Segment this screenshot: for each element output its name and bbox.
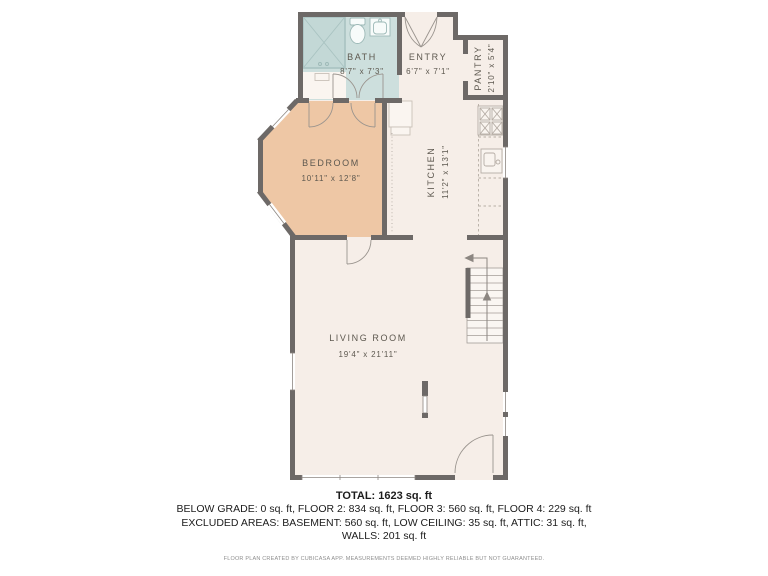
svg-text:KITCHEN: KITCHEN [426,147,436,198]
svg-text:BEDROOM: BEDROOM [302,158,360,168]
floor-closet [303,72,346,99]
excluded-areas-line: EXCLUDED AREAS: BASEMENT: 560 sq. ft, LO… [0,517,768,531]
floor-plan: BATH 8'7" x 7'3" ENTRY 6'7" x 7'1" PANTR… [0,0,768,490]
svg-text:ENTRY: ENTRY [409,52,447,62]
fireplace-icon [422,381,428,418]
bath-sink-icon [370,18,390,36]
total-area: TOTAL: 1623 sq. ft [0,490,768,503]
svg-text:LIVING ROOM: LIVING ROOM [329,333,407,343]
floor-areas-line: BELOW GRADE: 0 sq. ft, FLOOR 2: 834 sq. … [0,503,768,517]
area-summary: TOTAL: 1623 sq. ft BELOW GRADE: 0 sq. ft… [0,490,768,544]
walls-area-line: WALLS: 201 sq. ft [0,530,768,544]
kitchen-sink-icon [481,149,502,173]
svg-text:6'7" x 7'1": 6'7" x 7'1" [406,67,450,76]
toilet-icon [350,18,365,44]
svg-text:10'11" x 12'8": 10'11" x 12'8" [302,174,361,183]
window-kitchen-right [503,147,508,178]
svg-text:2'10" x 5'4": 2'10" x 5'4" [487,43,496,92]
stairs [466,255,504,344]
svg-text:11'2" x 13'1": 11'2" x 13'1" [441,145,450,199]
disclaimer: FLOOR PLAN CREATED BY CUBICASA APP. MEAS… [0,556,768,562]
svg-text:PANTRY: PANTRY [473,45,483,90]
svg-text:BATH: BATH [347,52,377,62]
svg-text:19'4" x 21'11": 19'4" x 21'11" [339,350,398,359]
fridge-icon [389,101,412,135]
window-living-left [290,353,295,390]
svg-text:8'7" x 7'3": 8'7" x 7'3" [340,67,384,76]
window-living-bottom [302,475,415,480]
stove-icon [478,106,503,135]
floor-plan-page: BATH 8'7" x 7'3" ENTRY 6'7" x 7'1" PANTR… [0,0,768,576]
shower-icon [303,17,345,68]
